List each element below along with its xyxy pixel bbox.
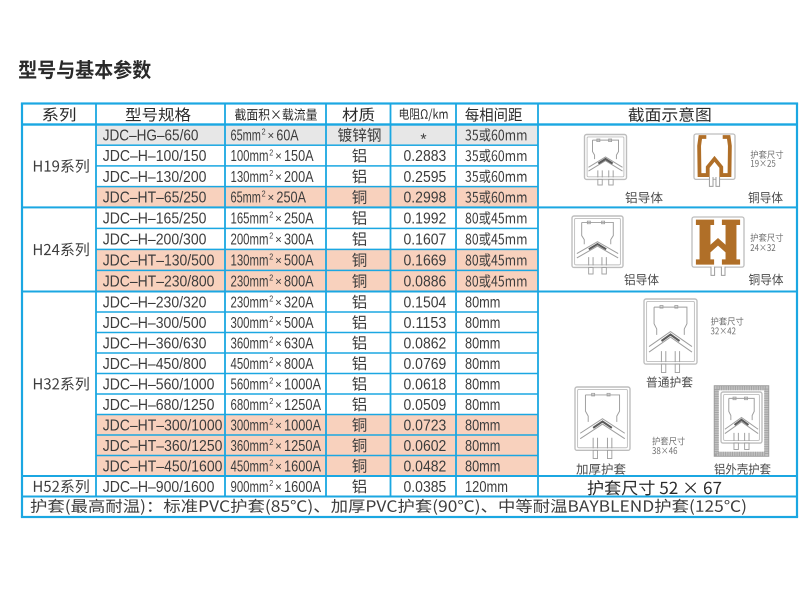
svg-text:JDC–HT–230/800: JDC–HT–230/800	[103, 273, 215, 290]
svg-text:250A: 250A	[284, 210, 314, 227]
svg-text:230mm: 230mm	[231, 294, 269, 311]
svg-text:0.1607: 0.1607	[404, 231, 447, 248]
svg-text:0.0618: 0.0618	[404, 376, 447, 393]
svg-text:80mm: 80mm	[465, 315, 500, 332]
svg-text:1000A: 1000A	[284, 417, 321, 434]
svg-text:230mm: 230mm	[231, 273, 269, 290]
svg-text:200A: 200A	[284, 169, 314, 186]
svg-text:JDC–H–360/630: JDC–H–360/630	[103, 335, 207, 352]
svg-text:×: ×	[275, 441, 282, 453]
svg-text:JDC–HT–65/250: JDC–HT–65/250	[103, 190, 207, 207]
svg-text:2: 2	[269, 147, 273, 157]
svg-text:80mm: 80mm	[465, 376, 500, 393]
svg-text:0.0602: 0.0602	[404, 438, 447, 455]
svg-text:×: ×	[275, 400, 282, 412]
svg-text:65mm: 65mm	[231, 127, 261, 144]
svg-text:×: ×	[275, 151, 282, 163]
svg-text:800A: 800A	[284, 273, 314, 290]
svg-text:2: 2	[269, 457, 273, 467]
svg-text:0.0482: 0.0482	[404, 458, 447, 475]
svg-text:JDC–H–200/300: JDC–H–200/300	[103, 231, 207, 248]
svg-text:1250A: 1250A	[284, 438, 321, 455]
svg-text:165mm: 165mm	[231, 210, 269, 227]
svg-text:JDC–H–450/800: JDC–H–450/800	[103, 356, 207, 373]
svg-text:×: ×	[275, 214, 282, 226]
svg-text:2: 2	[269, 355, 273, 365]
svg-text:560mm: 560mm	[231, 376, 269, 393]
svg-text:0.0723: 0.0723	[404, 417, 447, 434]
svg-text:0.1153: 0.1153	[404, 315, 447, 332]
svg-text:0.2883: 0.2883	[404, 148, 447, 165]
svg-text:2: 2	[269, 314, 273, 324]
svg-text:×: ×	[275, 297, 282, 309]
svg-text:×: ×	[275, 420, 282, 432]
svg-text:360mm: 360mm	[231, 438, 269, 455]
svg-text:1600A: 1600A	[284, 479, 321, 496]
svg-text:*: *	[420, 132, 426, 149]
svg-text:×: ×	[275, 256, 282, 268]
svg-text:JDC–H–100/150: JDC–H–100/150	[103, 148, 207, 165]
svg-text:2: 2	[262, 189, 266, 199]
svg-text:80mm: 80mm	[465, 335, 500, 352]
svg-text:0.0862: 0.0862	[404, 335, 447, 352]
svg-text:300mm: 300mm	[231, 315, 269, 332]
svg-text:JDC–HT–450/1600: JDC–HT–450/1600	[103, 458, 223, 475]
svg-text:×: ×	[275, 461, 282, 473]
svg-text:450mm: 450mm	[231, 458, 269, 475]
svg-text:JDC–H–680/1250: JDC–H–680/1250	[103, 397, 215, 414]
svg-text:×: ×	[275, 359, 282, 371]
svg-text:2: 2	[269, 416, 273, 426]
svg-text:×: ×	[275, 482, 282, 494]
svg-text:80mm: 80mm	[465, 397, 500, 414]
svg-text:JDC–HG–65/60: JDC–HG–65/60	[103, 127, 199, 144]
svg-text:2: 2	[269, 334, 273, 344]
svg-text:2: 2	[262, 127, 266, 137]
svg-text:0.0385: 0.0385	[404, 479, 447, 496]
svg-text:×: ×	[268, 130, 275, 142]
svg-text:80mm: 80mm	[465, 294, 500, 311]
svg-text:360mm: 360mm	[231, 335, 269, 352]
svg-text:1600A: 1600A	[284, 458, 321, 475]
svg-text:2: 2	[269, 252, 273, 262]
svg-text:1000A: 1000A	[284, 376, 321, 393]
svg-text:2: 2	[269, 273, 273, 283]
svg-text:80mm: 80mm	[465, 356, 500, 373]
svg-text:250A: 250A	[276, 190, 306, 207]
svg-text:×: ×	[268, 193, 275, 205]
svg-text:2: 2	[269, 396, 273, 406]
svg-text:80mm: 80mm	[465, 458, 500, 475]
svg-text:×: ×	[275, 277, 282, 289]
svg-text:130mm: 130mm	[231, 252, 269, 269]
svg-text:JDC–H–900/1600: JDC–H–900/1600	[103, 479, 215, 496]
svg-text:320A: 320A	[284, 294, 314, 311]
svg-text:0.2595: 0.2595	[404, 169, 447, 186]
svg-text:60A: 60A	[276, 127, 298, 144]
svg-text:680mm: 680mm	[231, 397, 269, 414]
svg-text:JDC–HT–130/500: JDC–HT–130/500	[103, 252, 215, 269]
svg-text:2: 2	[269, 478, 273, 488]
svg-text:80mm: 80mm	[465, 417, 500, 434]
svg-text:JDC–H–165/250: JDC–H–165/250	[103, 210, 207, 227]
svg-text:200mm: 200mm	[231, 231, 269, 248]
svg-text:120mm: 120mm	[465, 479, 508, 496]
svg-text:JDC–H–230/320: JDC–H–230/320	[103, 294, 207, 311]
svg-text:300mm: 300mm	[231, 417, 269, 434]
svg-text:0.0509: 0.0509	[404, 397, 447, 414]
svg-text:×: ×	[275, 379, 282, 391]
svg-text:630A: 630A	[284, 335, 314, 352]
svg-text:JDC–H–560/1000: JDC–H–560/1000	[103, 376, 215, 393]
svg-text:65mm: 65mm	[231, 190, 261, 207]
svg-text:JDC–HT–360/1250: JDC–HT–360/1250	[103, 438, 223, 455]
svg-text:500A: 500A	[284, 252, 314, 269]
svg-text:2: 2	[269, 375, 273, 385]
svg-text:150A: 150A	[284, 148, 314, 165]
svg-text:0.0769: 0.0769	[404, 356, 447, 373]
svg-text:0.1669: 0.1669	[404, 252, 447, 269]
svg-text:0.2998: 0.2998	[404, 190, 447, 207]
svg-text:2: 2	[269, 231, 273, 241]
svg-text:2: 2	[269, 437, 273, 447]
svg-text:JDC–H–300/500: JDC–H–300/500	[103, 315, 207, 332]
svg-text:2: 2	[269, 210, 273, 220]
svg-text:×: ×	[275, 318, 282, 330]
svg-text:80mm: 80mm	[465, 438, 500, 455]
svg-text:2: 2	[269, 168, 273, 178]
svg-text:300A: 300A	[284, 231, 314, 248]
svg-text:900mm: 900mm	[231, 479, 269, 496]
svg-text:0.1504: 0.1504	[404, 294, 447, 311]
svg-text:0.1992: 0.1992	[404, 210, 447, 227]
svg-text:130mm: 130mm	[231, 169, 269, 186]
svg-text:2: 2	[269, 293, 273, 303]
svg-text:450mm: 450mm	[231, 356, 269, 373]
svg-text:500A: 500A	[284, 315, 314, 332]
svg-text:×: ×	[275, 172, 282, 184]
svg-text:×: ×	[275, 338, 282, 350]
svg-text:JDC–HT–300/1000: JDC–HT–300/1000	[103, 417, 223, 434]
svg-text:×: ×	[275, 235, 282, 247]
svg-text:0.0886: 0.0886	[404, 273, 447, 290]
svg-text:800A: 800A	[284, 356, 314, 373]
svg-text:JDC–H–130/200: JDC–H–130/200	[103, 169, 207, 186]
svg-text:100mm: 100mm	[231, 148, 269, 165]
svg-text:1250A: 1250A	[284, 397, 321, 414]
